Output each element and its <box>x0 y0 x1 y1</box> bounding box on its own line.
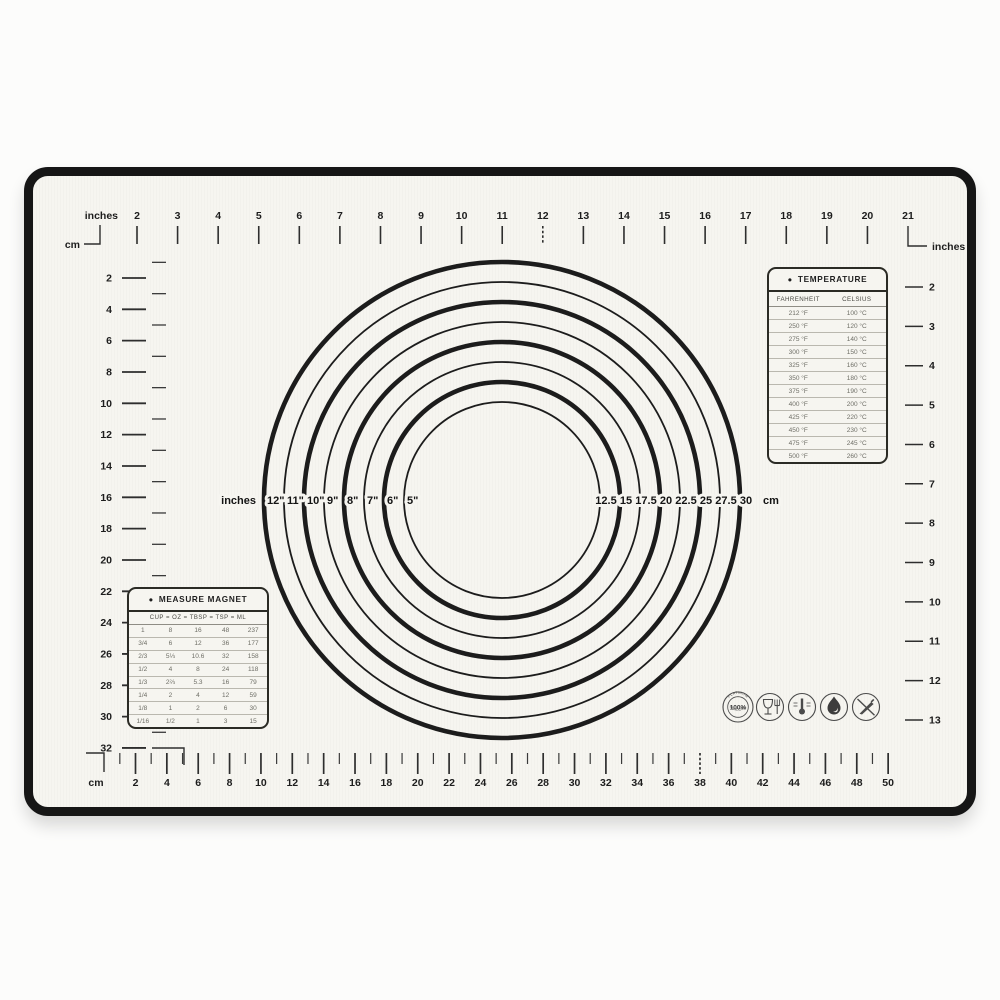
temperature-table: ● TEMPERATURE FAHRENHEIT CELSIUS 212 °F1… <box>767 267 888 464</box>
table-cell: 400 °F <box>769 401 828 408</box>
ruler-number: 26 <box>100 648 112 660</box>
table-cell: 3 <box>212 718 240 725</box>
temperature-row: 250 °F120 °C <box>769 320 886 333</box>
ruler-number: 12 <box>537 210 549 222</box>
column-celsius: CELSIUS <box>828 296 887 303</box>
ring-cm-label: 17.5 <box>635 495 656 507</box>
measure-header-text: CUP = OZ = TBSP = TSP = ML <box>150 615 246 621</box>
ruler-number: 28 <box>537 777 549 789</box>
ruler-number: 44 <box>788 777 800 789</box>
ruler-number: 38 <box>694 777 706 789</box>
table-cell: 250 °F <box>769 323 828 330</box>
measuring-ring <box>384 382 620 618</box>
ruler-number: 13 <box>578 210 590 222</box>
ruler-number: 8 <box>378 210 384 222</box>
temperature-row: 425 °F220 °C <box>769 411 886 424</box>
ruler-number: 8 <box>106 366 112 378</box>
table-cell: 32 <box>212 653 240 660</box>
ring-cm-label: 15 <box>620 495 632 507</box>
bullet-icon: ● <box>149 596 154 604</box>
ring-inches-label: 6" <box>387 495 398 507</box>
platinum-silicone-badge: 100% PLATINUM SILICONE <box>723 691 753 722</box>
ruler-number: 2 <box>133 777 139 789</box>
ring-inches-label: 8" <box>347 495 358 507</box>
ruler-number: 4 <box>106 304 112 316</box>
ruler-number: 13 <box>929 714 941 726</box>
food-safe-icon <box>757 694 784 721</box>
table-cell: 350 °F <box>769 375 828 382</box>
corner-bracket <box>84 225 100 244</box>
ring-cm-label: 27.5 <box>715 495 736 507</box>
ruler-number: 12 <box>286 777 298 789</box>
ruler-number: 16 <box>699 210 711 222</box>
ruler-number: 26 <box>506 777 518 789</box>
ruler-number: 9 <box>929 557 935 569</box>
table-cell: 450 °F <box>769 427 828 434</box>
table-cell: 79 <box>239 679 267 686</box>
table-cell: 10.6 <box>184 653 212 660</box>
table-cell: 200 °C <box>828 401 887 408</box>
ruler-number: 48 <box>851 777 863 789</box>
table-cell: 118 <box>239 666 267 673</box>
ruler-number: 10 <box>456 210 468 222</box>
temperature-row: 212 °F100 °C <box>769 307 886 320</box>
measure-row: 3/461236177 <box>129 638 267 651</box>
ruler-number: 14 <box>618 210 630 222</box>
table-cell: 300 °F <box>769 349 828 356</box>
badge-arc-top-label: PLATINUM <box>727 691 749 699</box>
temperature-rows: 212 °F100 °C250 °F120 °C275 °F140 °C300 … <box>769 307 886 462</box>
table-cell: 150 °C <box>828 349 887 356</box>
ring-cm-label: 30 <box>740 495 752 507</box>
measure-rows: 1816482373/4612361772/35⅓10.6321581/2482… <box>129 625 267 727</box>
table-cell: 1/2 <box>157 718 185 725</box>
table-cell: 2⅔ <box>157 679 185 686</box>
table-cell: 1/2 <box>129 666 157 673</box>
table-cell: 8 <box>157 627 185 634</box>
ruler-number: 22 <box>443 777 455 789</box>
temperature-row: 475 °F245 °C <box>769 437 886 450</box>
table-cell: 24 <box>212 666 240 673</box>
measure-row: 2/35⅓10.632158 <box>129 651 267 664</box>
temperature-row: 300 °F150 °C <box>769 346 886 359</box>
table-cell: 4 <box>157 666 185 673</box>
ruler-number: 10 <box>929 596 941 608</box>
ruler-number: 24 <box>100 617 112 629</box>
table-cell: 177 <box>239 640 267 647</box>
ruler-unit-label: cm <box>65 239 80 251</box>
table-cell: 230 °C <box>828 427 887 434</box>
ring-inches-label: 11" <box>287 495 304 507</box>
table-cell: 8 <box>184 666 212 673</box>
temperature-title-text: TEMPERATURE <box>798 275 867 284</box>
ruler-number: 4 <box>929 360 935 372</box>
table-cell: 4 <box>184 692 212 699</box>
ruler-number: 22 <box>100 586 112 598</box>
ruler-number: 11 <box>497 210 508 222</box>
table-cell: 237 <box>239 627 267 634</box>
temperature-row: 350 °F180 °C <box>769 372 886 385</box>
table-cell: 245 °C <box>828 440 887 447</box>
ruler-number: 18 <box>381 777 393 789</box>
table-cell: 30 <box>239 705 267 712</box>
right-ruler-inches: inches2345678910111213 <box>905 226 965 726</box>
table-cell: 48 <box>212 627 240 634</box>
table-cell: 59 <box>239 692 267 699</box>
ruler-number: 5 <box>929 400 935 412</box>
table-cell: 1/3 <box>129 679 157 686</box>
bullet-icon: ● <box>788 276 793 284</box>
ruler-number: 4 <box>215 210 221 222</box>
ruler-number: 4 <box>164 777 170 789</box>
ruler-number: 14 <box>318 777 330 789</box>
ruler-number: 8 <box>227 777 233 789</box>
table-cell: 100 °C <box>828 310 887 317</box>
ruler-number: 15 <box>659 210 671 222</box>
table-cell: 2/3 <box>129 653 157 660</box>
table-cell: 12 <box>184 640 212 647</box>
table-cell: 6 <box>212 705 240 712</box>
column-fahrenheit: FAHRENHEIT <box>769 296 828 303</box>
measure-magnet-table: ● MEASURE MAGNET CUP = OZ = TBSP = TSP =… <box>127 587 269 729</box>
measure-column-headers: CUP = OZ = TBSP = TSP = ML <box>129 612 267 625</box>
ruler-number: 2 <box>134 210 140 222</box>
ruler-number: 30 <box>100 711 112 723</box>
ruler-number: 32 <box>600 777 612 789</box>
ring-cm-label: 20 <box>660 495 672 507</box>
measure-row: 1/32⅔5.31679 <box>129 677 267 690</box>
corner-bracket <box>86 753 104 772</box>
ruler-number: 50 <box>882 777 894 789</box>
table-cell: 325 °F <box>769 362 828 369</box>
table-cell: 212 °F <box>769 310 828 317</box>
temperature-table-title: ● TEMPERATURE <box>769 269 886 292</box>
ruler-number: 20 <box>862 210 874 222</box>
table-cell: 15 <box>239 718 267 725</box>
ruler-number: 6 <box>106 335 112 347</box>
rings-unit-label-right: cm <box>763 495 779 507</box>
table-cell: 1 <box>157 705 185 712</box>
ruler-number: 40 <box>725 777 737 789</box>
ring-inches-label: 10" <box>307 495 324 507</box>
ruler-number: 10 <box>255 777 267 789</box>
mat-markings: 100% PLATINUM SILICONE <box>0 0 1000 1000</box>
ruler-number: 10 <box>100 398 112 410</box>
ruler-number: 30 <box>569 777 581 789</box>
ruler-unit-label: cm <box>88 777 103 789</box>
ruler-number: 36 <box>663 777 675 789</box>
ruler-number: 16 <box>100 492 112 504</box>
ruler-number: 17 <box>740 210 752 222</box>
corner-bracket <box>908 226 927 246</box>
measure-row: 1/24824118 <box>129 664 267 677</box>
table-cell: 2 <box>184 705 212 712</box>
ruler-number: 46 <box>820 777 832 789</box>
ruler-number: 8 <box>929 518 935 530</box>
table-cell: 12 <box>212 692 240 699</box>
measure-table-title: ● MEASURE MAGNET <box>129 589 267 612</box>
ruler-number: 7 <box>337 210 343 222</box>
table-cell: 5⅓ <box>157 653 185 660</box>
ruler-number: 18 <box>100 523 112 535</box>
table-cell: 3/4 <box>129 640 157 647</box>
svg-text:PLATINUM: PLATINUM <box>727 691 749 699</box>
table-cell: 16 <box>184 627 212 634</box>
ruler-number: 18 <box>780 210 792 222</box>
measuring-ring <box>404 402 600 598</box>
table-cell: 2 <box>157 692 185 699</box>
ruler-number: 12 <box>929 675 941 687</box>
certification-badges: 100% PLATINUM SILICONE <box>723 691 880 722</box>
table-cell: 1 <box>184 718 212 725</box>
ruler-number: 20 <box>412 777 424 789</box>
ruler-number: 5 <box>256 210 262 222</box>
table-cell: 260 °C <box>828 453 887 460</box>
table-cell: 140 °C <box>828 336 887 343</box>
table-cell: 16 <box>212 679 240 686</box>
table-cell: 220 °C <box>828 414 887 421</box>
ring-cm-label: 12.5 <box>595 495 616 507</box>
ruler-number: 14 <box>100 460 112 472</box>
ring-cm-label: 25 <box>700 495 712 507</box>
ruler-number: 42 <box>757 777 769 789</box>
measure-row: 1/4241259 <box>129 689 267 702</box>
top-ruler-inches: inches23456789101112131415161718192021 <box>85 210 914 244</box>
ring-inches-label: 9" <box>327 495 338 507</box>
rings-unit-label-left: inches <box>221 495 256 507</box>
ruler-number: 6 <box>929 439 935 451</box>
table-cell: 5.3 <box>184 679 212 686</box>
table-cell: 1/4 <box>129 692 157 699</box>
ring-inches-label: 12" <box>267 495 284 507</box>
ruler-number: 19 <box>821 210 833 222</box>
ruler-number: 3 <box>929 321 935 333</box>
ruler-number: 9 <box>418 210 424 222</box>
ruler-number: 24 <box>475 777 487 789</box>
ruler-number: 11 <box>929 636 940 648</box>
temperature-range-icon <box>789 694 816 721</box>
heat-resistant-icon <box>821 694 848 721</box>
table-cell: 475 °F <box>769 440 828 447</box>
ruler-unit-label: inches <box>932 241 965 253</box>
ruler-number: 6 <box>296 210 302 222</box>
ring-cm-label: 22.5 <box>675 495 696 507</box>
ruler-number: 12 <box>100 429 112 441</box>
corner-bracket <box>152 748 184 765</box>
measure-row: 1/812630 <box>129 702 267 715</box>
table-cell: 1 <box>129 627 157 634</box>
temperature-row: 400 °F200 °C <box>769 398 886 411</box>
temperature-row: 325 °F160 °C <box>769 359 886 372</box>
temperature-row: 275 °F140 °C <box>769 333 886 346</box>
table-cell: 6 <box>157 640 185 647</box>
measure-row: 181648237 <box>129 625 267 638</box>
table-cell: 1/8 <box>129 705 157 712</box>
table-cell: 158 <box>239 653 267 660</box>
table-cell: 500 °F <box>769 453 828 460</box>
temperature-row: 450 °F230 °C <box>769 424 886 437</box>
temperature-column-headers: FAHRENHEIT CELSIUS <box>769 292 886 307</box>
table-cell: 180 °C <box>828 375 887 382</box>
table-cell: 190 °C <box>828 388 887 395</box>
table-cell: 275 °F <box>769 336 828 343</box>
table-cell: 36 <box>212 640 240 647</box>
ruler-number: 20 <box>100 554 112 566</box>
ruler-number: 28 <box>100 680 112 692</box>
measure-row: 1/161/21315 <box>129 715 267 727</box>
ruler-number: 34 <box>631 777 643 789</box>
ruler-number: 3 <box>175 210 181 222</box>
ruler-number: 21 <box>902 210 914 222</box>
table-cell: 160 °C <box>828 362 887 369</box>
temperature-row: 500 °F260 °C <box>769 450 886 462</box>
table-cell: 425 °F <box>769 414 828 421</box>
ruler-unit-label: inches <box>85 210 118 222</box>
ruler-number: 2 <box>929 282 935 294</box>
temperature-row: 375 °F190 °C <box>769 385 886 398</box>
ruler-number: 2 <box>106 273 112 285</box>
ruler-number: 6 <box>195 777 201 789</box>
ruler-number: 7 <box>929 478 935 490</box>
product-photo: { "colors": {"mat_surface": "#f6f5f0", "… <box>0 0 1000 1000</box>
no-knife-icon <box>853 694 880 721</box>
table-cell: 120 °C <box>828 323 887 330</box>
bottom-ruler-cm: cm24681012141618202224262830323436384042… <box>86 753 894 789</box>
ring-inches-label: 7" <box>367 495 378 507</box>
measure-title-text: MEASURE MAGNET <box>159 595 248 604</box>
ring-inches-label: 5" <box>407 495 418 507</box>
table-cell: 1/16 <box>129 718 157 725</box>
table-cell: 375 °F <box>769 388 828 395</box>
ruler-number: 16 <box>349 777 361 789</box>
